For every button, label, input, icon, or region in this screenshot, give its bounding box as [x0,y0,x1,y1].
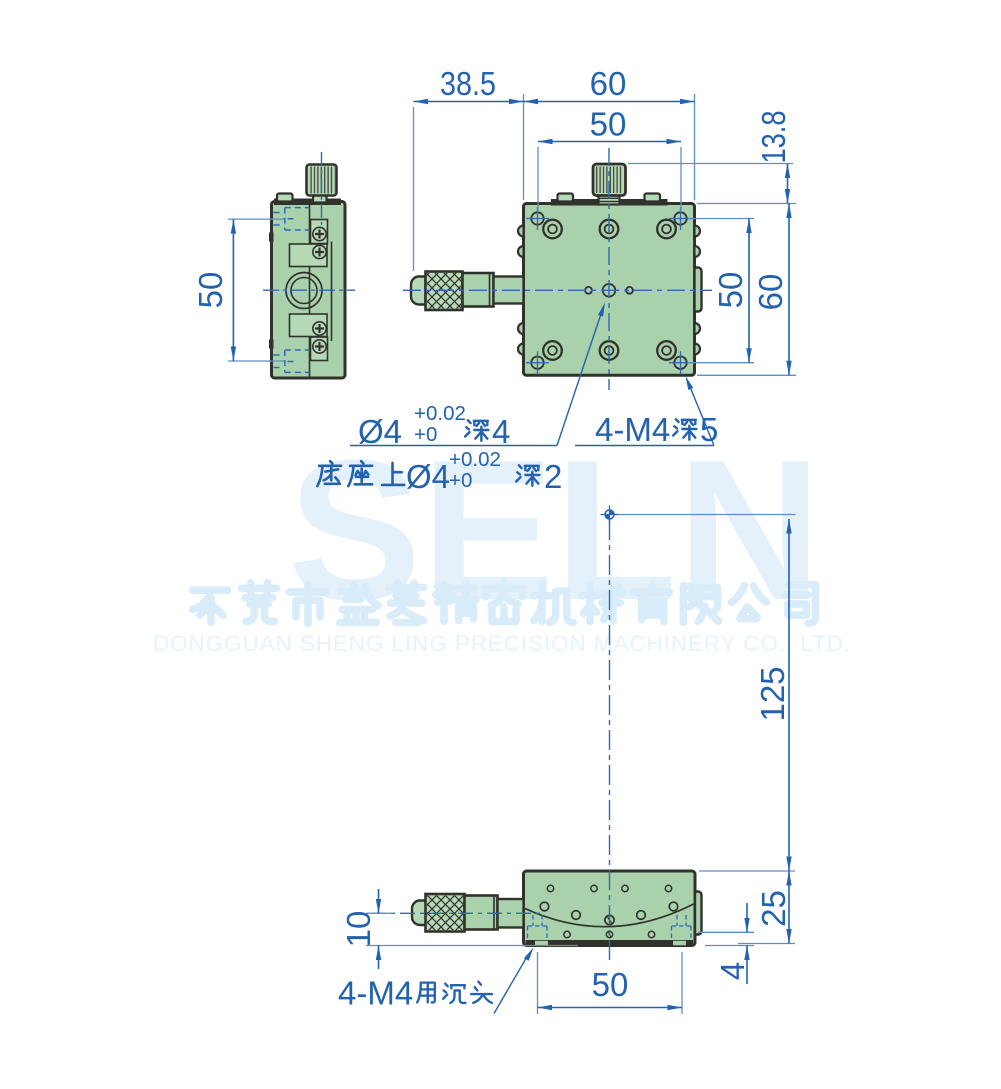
svg-text:4: 4 [714,962,751,980]
svg-text:50: 50 [592,966,629,1003]
svg-text:125: 125 [754,666,791,721]
svg-text:4: 4 [492,413,510,450]
svg-text:50: 50 [192,272,229,309]
svg-text:Ø4: Ø4 [406,458,450,495]
svg-text:+0: +0 [449,469,472,492]
svg-text:10: 10 [340,911,377,948]
svg-text:50: 50 [590,106,627,143]
svg-text:13.8: 13.8 [755,111,792,164]
svg-text:4-M4: 4-M4 [338,975,413,1012]
svg-text:+0: +0 [414,423,437,446]
svg-text:60: 60 [590,65,627,102]
svg-text:38.5: 38.5 [440,65,496,102]
svg-text:+0.02: +0.02 [414,402,466,425]
svg-text:2: 2 [544,458,562,495]
svg-text:25: 25 [755,890,792,927]
svg-text:4-M4: 4-M4 [595,411,670,448]
svg-text:Ø4: Ø4 [358,413,402,450]
svg-text:60: 60 [752,274,789,311]
svg-text:50: 50 [712,272,749,309]
svg-text:+0.02: +0.02 [449,448,501,471]
svg-text:DONGGUAN SHENG LING PRECISION: DONGGUAN SHENG LING PRECISION MACHINERY … [153,631,851,656]
